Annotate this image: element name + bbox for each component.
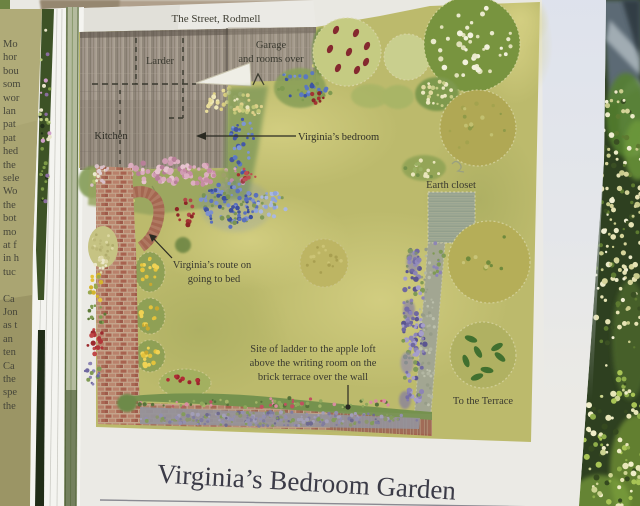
svg-text:Site of ladder to the apple lo: Site of ladder to the apple loft (250, 344, 375, 355)
svg-text:sele: sele (3, 173, 20, 184)
svg-text:hed: hed (3, 146, 19, 157)
svg-text:bot: bot (3, 213, 17, 224)
svg-text:Virginia’s bedroom: Virginia’s bedroom (298, 132, 379, 143)
svg-text:mo: mo (3, 227, 16, 238)
svg-text:ten: ten (3, 347, 17, 358)
svg-text:Ca: Ca (3, 294, 15, 305)
svg-text:pat: pat (3, 119, 16, 130)
svg-text:the: the (3, 401, 16, 412)
svg-text:lan: lan (3, 106, 17, 117)
svg-text:Garage: Garage (256, 40, 287, 51)
svg-text:Jon: Jon (3, 307, 18, 318)
svg-text:going to bed: going to bed (188, 274, 241, 285)
svg-text:an: an (3, 334, 14, 345)
svg-text:Mo: Mo (3, 39, 18, 50)
svg-text:spe: spe (3, 387, 17, 398)
svg-text:Ca: Ca (3, 361, 15, 372)
svg-text:tuc: tuc (3, 267, 16, 278)
svg-text:in h: in h (3, 253, 20, 264)
svg-text:brick terrace over the wall: brick terrace over the wall (258, 372, 368, 383)
svg-text:Wo: Wo (3, 186, 17, 197)
svg-text:som: som (3, 79, 21, 90)
svg-text:Kitchen: Kitchen (94, 131, 128, 142)
svg-text:the: the (3, 374, 16, 385)
svg-text:above the writing room on the: above the writing room on the (250, 358, 377, 369)
svg-text:Larder: Larder (146, 56, 174, 67)
svg-text:bou: bou (3, 66, 20, 77)
svg-text:as t: as t (3, 320, 17, 331)
svg-text:the: the (3, 160, 16, 171)
svg-text:the: the (3, 200, 16, 211)
svg-text:wor: wor (3, 93, 20, 104)
svg-text:pat: pat (3, 133, 16, 144)
svg-text:Virginia’s route on: Virginia’s route on (173, 260, 252, 271)
svg-text:The Street, Rodmell: The Street, Rodmell (172, 13, 261, 25)
svg-text:at f: at f (3, 240, 17, 251)
svg-text:hor: hor (3, 52, 18, 63)
svg-text:Earth closet: Earth closet (426, 180, 476, 191)
svg-text:To the Terrace: To the Terrace (453, 396, 513, 407)
svg-text:and rooms over: and rooms over (238, 54, 304, 65)
